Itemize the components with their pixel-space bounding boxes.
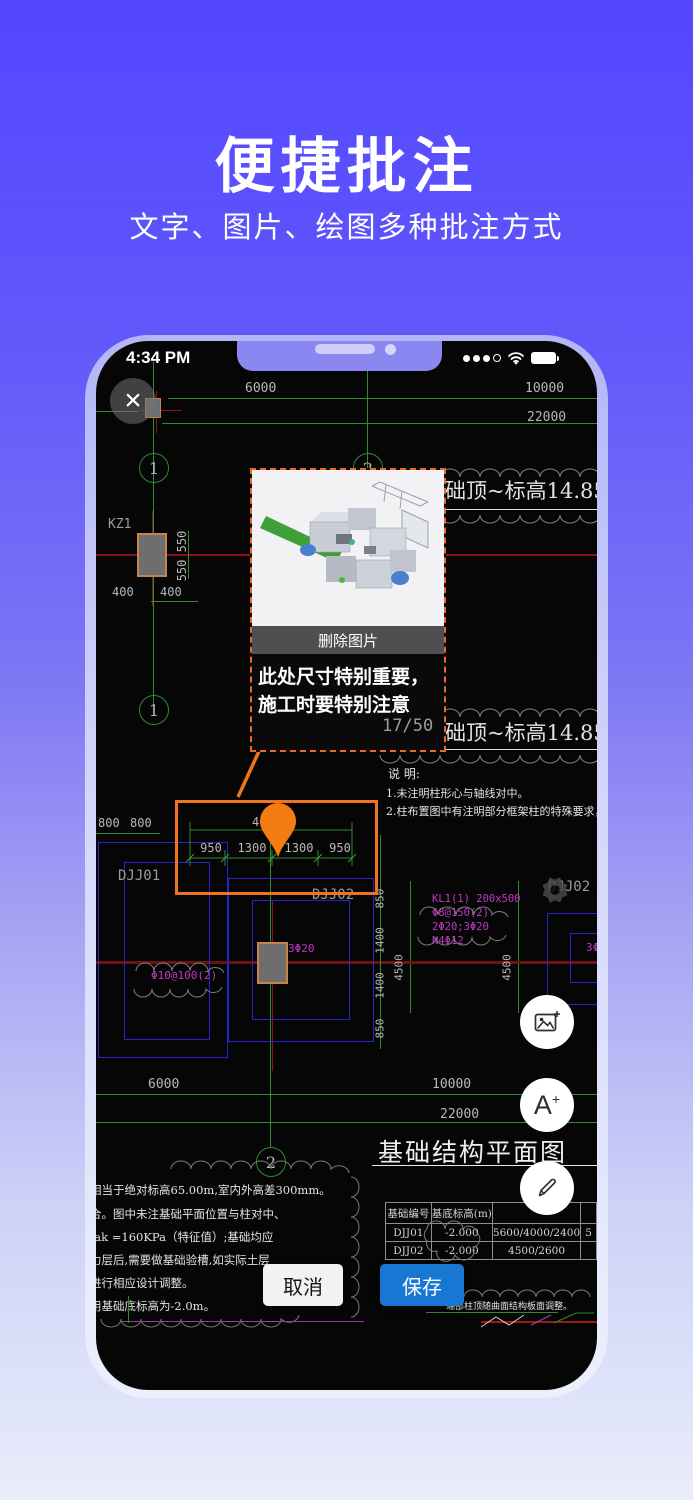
cad-line [96, 1122, 597, 1123]
cancel-button[interactable]: 取消 [263, 1264, 343, 1306]
promo-page: 便捷批注 文字、图片、绘图多种批注方式 4:34 PM [0, 0, 693, 1500]
grid-bubble: 1 [139, 695, 169, 725]
close-button[interactable]: × [110, 378, 156, 424]
pencil-icon [535, 1176, 559, 1200]
delete-image-button[interactable]: 删除图片 [252, 626, 444, 654]
text-plus-icon: A+ [534, 1090, 560, 1121]
dim-label: 22000 [527, 410, 566, 425]
phone-mockup: 4:34 PM 6000 1 [85, 335, 608, 1398]
cad-line [151, 601, 198, 602]
draw-button[interactable] [520, 1161, 574, 1215]
column-label: KZ1 [108, 517, 131, 532]
dim-label: 22000 [440, 1107, 479, 1122]
dim-label: 800 [130, 816, 152, 830]
grid-bubble: 1 [139, 453, 169, 483]
dim-label: 850 [374, 1012, 387, 1046]
camera-icon [385, 344, 396, 355]
speaker-icon [315, 344, 375, 354]
dim-label: 800 [98, 816, 120, 830]
page-title: 便捷批注 [0, 118, 693, 205]
footing-label: DJJ01 [118, 868, 160, 884]
close-icon: × [124, 384, 142, 418]
status-icons [463, 351, 556, 365]
page-subtitle: 文字、图片、绘图多种批注方式 [0, 204, 693, 246]
annotation-image [252, 470, 444, 626]
rebar-label: 3Φ20 [288, 942, 315, 955]
battery-icon [531, 352, 556, 364]
cad-column [257, 942, 288, 984]
foundation-table: 基础编号 基底标高(m) DJJ01 -2.000 5600/4000/2400… [385, 1202, 597, 1260]
dim-label: 1400 [374, 924, 387, 958]
machinery-photo [252, 470, 444, 626]
app-screen: 4:34 PM 6000 1 [96, 341, 597, 1390]
page-indicator: 17/50 [382, 716, 433, 736]
cad-line [121, 1321, 364, 1322]
status-time: 4:34 PM [126, 348, 190, 368]
dim-label: 4500 [393, 948, 406, 988]
gear-icon [532, 867, 578, 913]
phone-notch [237, 341, 442, 371]
note-item: 2.柱布置图中有注明部分框架柱的特殊要求，应根据特殊要求 [386, 803, 597, 819]
cad-line [128, 1296, 129, 1323]
dim-label: 6000 [245, 381, 276, 396]
dim-label: 1400 [374, 969, 387, 1003]
notes-title: 说 明: [388, 765, 420, 782]
location-pin-icon [260, 803, 296, 857]
wifi-icon [507, 351, 525, 365]
annotation-text[interactable]: 此处尺寸特别重要， 施工时要特别注意 [252, 654, 444, 720]
dim-label: 4500 [501, 948, 514, 988]
annotation-popup[interactable]: 删除图片 此处尺寸特别重要， 施工时要特别注意 [250, 468, 446, 752]
revision-cloud [132, 955, 228, 1001]
cad-column [137, 533, 167, 577]
cad-detail-lines [476, 1309, 597, 1335]
dim-label: 400 [112, 585, 134, 599]
dim-label: 10000 [432, 1077, 471, 1092]
table-row: DJJ01 -2.000 5600/4000/2400 5 [386, 1224, 597, 1242]
image-plus-icon [534, 1010, 561, 1035]
cad-line [168, 398, 597, 399]
dim-label: 400 [160, 585, 182, 599]
dim-label: 550 550 [175, 528, 189, 584]
revision-cloud [421, 1213, 483, 1265]
rebar-label: 3Φ20 [586, 941, 597, 954]
cad-line [96, 833, 160, 834]
cell-signal-icon [463, 354, 501, 362]
dim-label: 10000 [525, 381, 564, 396]
table-row: DJJ02 -2.000 4500/2600 [386, 1242, 597, 1260]
cad-grid-line [410, 881, 411, 1013]
save-button[interactable]: 保存 [380, 1264, 464, 1306]
note-item: 1.未注明柱形心与轴线对中。 [386, 785, 529, 801]
add-text-button[interactable]: A+ [520, 1078, 574, 1132]
table-header [581, 1203, 597, 1224]
dim-label: 6000 [148, 1077, 179, 1092]
add-image-button[interactable] [520, 995, 574, 1049]
revision-cloud [414, 897, 510, 951]
dim-label: 950 [325, 841, 355, 855]
